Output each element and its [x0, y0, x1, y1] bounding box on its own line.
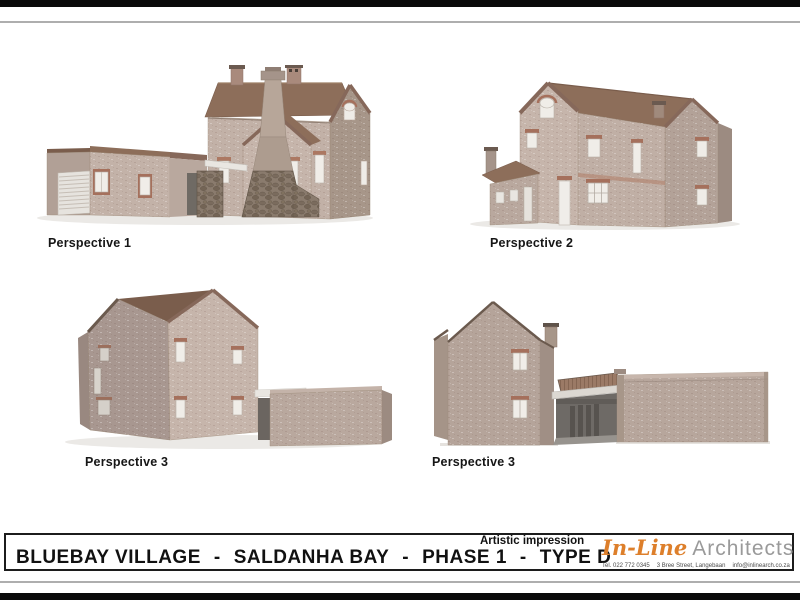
gable-window-upper: [511, 349, 529, 370]
garage-window-2: [138, 174, 152, 198]
front-window-right: [313, 151, 326, 183]
garage-wing: [47, 146, 207, 217]
logo-architects-text: Architects: [692, 537, 794, 560]
contact-address: 3 Bree Street, Langebaan: [657, 563, 726, 569]
house-front-left-view: [25, 65, 375, 235]
roller-garage-door: [58, 171, 90, 215]
logo-inline-text: In-Line: [602, 535, 687, 560]
wing-door: [524, 187, 532, 221]
shadow-window-tall: [94, 368, 101, 394]
right-lit-face: [168, 290, 258, 440]
front-wall: [578, 113, 665, 227]
perspective-4-rendering: [420, 290, 780, 460]
lit-window-ul: [176, 342, 185, 362]
lit-window-lr: [233, 400, 242, 415]
house-side-elevation-view: [420, 290, 780, 460]
house-rear-corner-view: [50, 280, 395, 460]
shadow-window-upper: [100, 348, 109, 361]
long-boundary-wall: [614, 369, 768, 442]
title-segment: SALDANHA BAY: [234, 547, 390, 568]
upper-window: [588, 139, 600, 157]
pier-cap: [614, 369, 626, 374]
gable-window-upper: [697, 141, 707, 157]
ridge-chimney: [652, 101, 666, 118]
contact-tel: Tel. 022 772 0345: [602, 563, 650, 569]
bottom-letterbox-bar: [0, 593, 800, 600]
gable-end-house: [434, 302, 559, 445]
gable-window-lower: [697, 189, 707, 205]
dark-passage: [187, 173, 197, 215]
covered-passage: [552, 373, 621, 445]
wing-window-2: [510, 190, 518, 201]
lit-window-ll: [176, 400, 185, 418]
perspective-1-rendering: [25, 65, 375, 235]
perspective-label: Perspective 2: [490, 236, 573, 250]
garage-window-1: [93, 169, 110, 195]
title-separator: -: [201, 547, 234, 568]
title-segment: PHASE 1: [422, 547, 507, 568]
dark-passage: [258, 398, 270, 440]
gable-window-lower: [511, 396, 529, 418]
lean-to: [434, 334, 448, 440]
shadow-window-lower: [98, 400, 110, 415]
side-window: [361, 161, 367, 185]
title-segment: BLUEBAY VILLAGE: [16, 547, 201, 568]
tall-door: [559, 181, 570, 225]
tall-window: [633, 143, 641, 173]
perspective-2-rendering: [420, 65, 780, 235]
perspective-label: Perspective 1: [48, 236, 131, 250]
garage-wing: [270, 386, 392, 446]
paper-bottom-edge: [0, 581, 800, 583]
gable-small-window: [527, 133, 537, 148]
lit-window-ur: [233, 350, 242, 364]
project-title: BLUEBAY VILLAGE-SALDANHA BAY-PHASE 1-TYP…: [16, 547, 611, 569]
wing-window-1: [496, 192, 504, 203]
title-block: Artistic impression BLUEBAY VILLAGE-SALD…: [4, 533, 794, 571]
contact-email: info@inlinearch.co.za: [732, 563, 789, 569]
perspective-3-rendering: [50, 280, 395, 460]
right-gable-wing: [665, 99, 732, 227]
perspective-label: Perspective 3: [85, 455, 168, 469]
title-segment: TYPE D: [540, 547, 612, 568]
title-separator: -: [507, 547, 540, 568]
paper-top-edge: [0, 21, 800, 23]
wall-pier: [617, 375, 624, 442]
brick-chimney-left: [229, 65, 245, 85]
house-corner-view: [420, 65, 780, 235]
stone-wall: [197, 171, 223, 217]
title-separator: -: [389, 547, 422, 568]
architect-contact: Tel. 022 772 0345 3 Bree Street, Langeba…: [602, 563, 794, 569]
architect-logo: In-LineArchitects Tel. 022 772 0345 3 Br…: [602, 536, 794, 569]
arched-gable-window: [343, 101, 356, 120]
artistic-impression-note: Artistic impression: [480, 535, 584, 547]
arched-attic-window: [538, 96, 556, 118]
logo-wordmark: In-LineArchitects: [602, 536, 794, 563]
top-letterbox-bar: [0, 0, 800, 7]
left-shadow-face: [78, 299, 170, 440]
perspective-label: Perspective 3: [432, 455, 515, 469]
lower-grid-window: [586, 179, 610, 203]
brick-chimney-right: [285, 65, 303, 84]
